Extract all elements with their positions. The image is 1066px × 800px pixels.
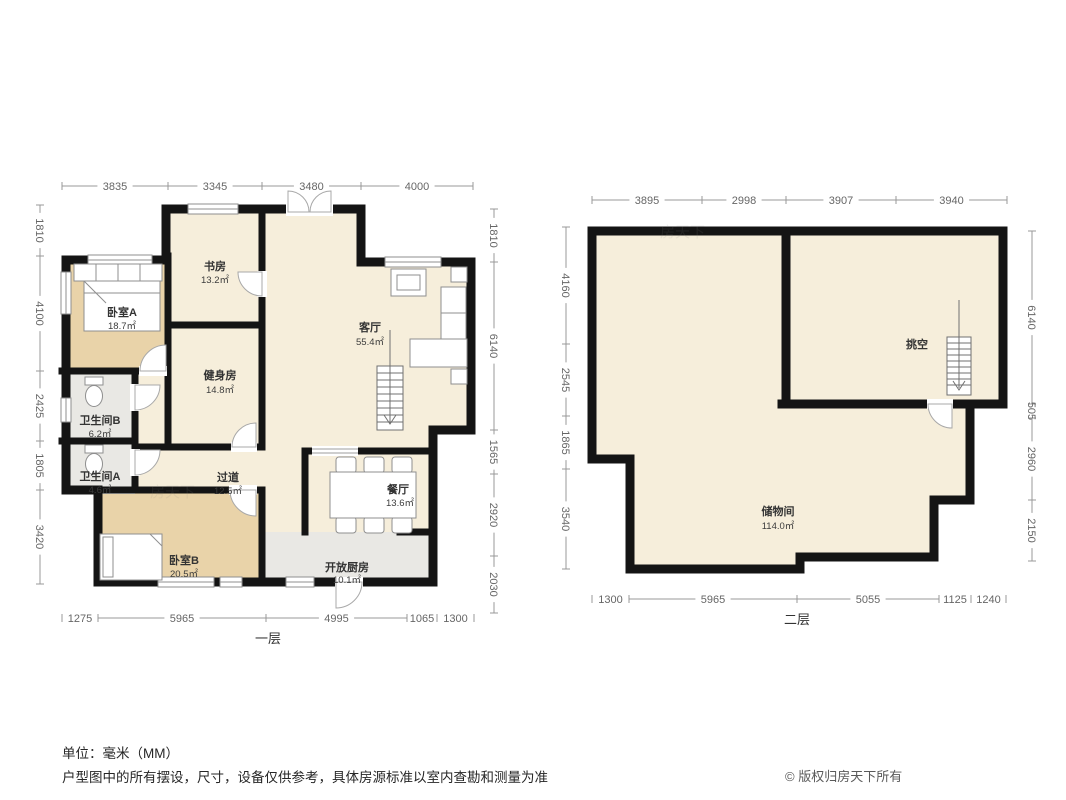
room-area: 6.2㎡ [89,429,112,440]
dim-label: 4100 [33,301,45,325]
dim-label: 3907 [829,195,853,207]
dim-label: 1125 [943,594,967,606]
dining-opening [312,446,358,456]
room-area: 18.7㎡ [108,321,136,332]
window-kitchen-bottom [286,577,314,587]
dim-label: 3540 [559,507,571,531]
floor1-plan: 书房 13.2㎡ 卧室A 18.7㎡ 客厅 55.4㎡ 健身房 14.8㎡ 卫生… [61,191,475,608]
dim-label: 1300 [598,594,622,606]
window-bathB-left [61,398,71,422]
room-label: 储物间 [762,504,795,518]
dim-label: 4995 [324,613,348,625]
dim-label: 2960 [1025,447,1037,471]
floor2-plan: 挑空 储物间 114.0㎡ 房天下 [592,224,1007,569]
dim-label: 2998 [732,195,756,207]
room-label: 卫生间B [80,413,121,427]
dim-label: 1810 [487,223,499,247]
dim-label: 1865 [559,430,571,454]
dim-chain: 12755965499510651300 [62,613,474,625]
room-label: 客厅 [358,320,381,334]
dim-label: 4000 [405,181,429,193]
dim-chain: 3835334534804000 [62,181,473,193]
room-area: 20.5㎡ [170,569,198,580]
dim-label: 3345 [203,181,227,193]
room-label: 卫生间A [80,469,121,483]
dim-chain: 18104100242518053420 [33,205,45,584]
dim-label: 5055 [856,594,880,606]
dim-label: 2425 [33,394,45,418]
bedroomB-bed [100,534,162,580]
room-label: 卧室B [169,553,199,567]
room-area: 10.1㎡ [333,575,361,586]
room-label: 开放厨房 [325,560,369,574]
dim-chain: 13005965505511251240 [592,594,1006,606]
living-side-table-top [451,267,467,282]
floor2-caption: 二层 [784,612,810,627]
room-label: 挑空 [906,337,928,351]
copyright-note: © 版权归房天下所有 [785,766,902,785]
dim-label: 1565 [487,440,499,464]
dim-label: 1065 [410,613,434,625]
dim-label: 3940 [939,195,963,207]
room-label: 过道 [217,470,239,484]
room-area: 14.8㎡ [206,385,234,396]
dim-label: 1300 [443,613,467,625]
dim-label: 1805 [33,453,45,477]
floorplan-page: 书房 13.2㎡ 卧室A 18.7㎡ 客厅 55.4㎡ 健身房 14.8㎡ 卫生… [0,0,1066,800]
room-area: 12.5㎡ [214,486,242,497]
dim-label: 4160 [559,273,571,297]
watermark-text: 房天下 [150,484,195,501]
dim-label: 2920 [487,503,499,527]
dim-label: 505 [1025,402,1037,420]
living-side-table-bottom [451,369,467,384]
dim-label: 3835 [103,181,127,193]
dim-label: 6140 [1025,305,1037,329]
disclaimer-note: 户型图中的所有摆设，尺寸，设备仅供参考，具体房源标准以室内查勘和测量为准 [62,766,548,790]
room-label: 餐厅 [386,482,409,496]
floor2-footprint [592,227,1007,569]
room-area: 13.2㎡ [201,275,229,286]
room-area: 13.6㎡ [386,498,414,509]
room-area: 114.0㎡ [762,521,795,532]
dim-label: 3420 [33,525,45,549]
floor1-caption: 一层 [255,631,281,646]
dim-label: 1275 [68,613,92,625]
dim-label: 5965 [701,594,725,606]
dim-chain: 4160254518653540 [559,227,571,569]
window-living-top [385,257,441,267]
floorplan-svg: 书房 13.2㎡ 卧室A 18.7㎡ 客厅 55.4㎡ 健身房 14.8㎡ 卫生… [0,0,1066,800]
entry-double-door [286,191,333,216]
bathB-toilet [85,377,103,407]
dim-label: 3895 [635,195,659,207]
dim-label: 2150 [1025,518,1037,542]
dim-label: 1240 [976,594,1000,606]
dim-chain: 614050529602150 [1025,231,1037,561]
dim-label: 2030 [487,572,499,596]
dim-label: 6140 [487,334,499,358]
dim-chain: 3895299839073940 [592,195,1007,207]
living-armchair [391,269,426,296]
dim-chain: 18106140156529202030 [487,209,499,613]
dim-label: 2545 [559,368,571,392]
unit-note: 单位：毫米（MM） [62,742,548,766]
dim-label: 5965 [170,613,194,625]
window-bedroomB-bottom2 [220,577,242,587]
room-label: 卧室A [107,305,137,319]
watermark-text: 房天下 [660,224,705,241]
room-area: 55.4㎡ [356,337,384,348]
window-study-top [188,204,238,214]
dim-label: 1810 [33,218,45,242]
room-label: 书房 [204,259,226,273]
room-area: 4.6㎡ [89,485,112,496]
dim-label: 3480 [299,181,323,193]
footer-notes: 单位：毫米（MM） 户型图中的所有摆设，尺寸，设备仅供参考，具体房源标准以室内查… [62,742,548,790]
room-label: 健身房 [204,368,237,382]
window-bedroomA-left [61,272,71,314]
